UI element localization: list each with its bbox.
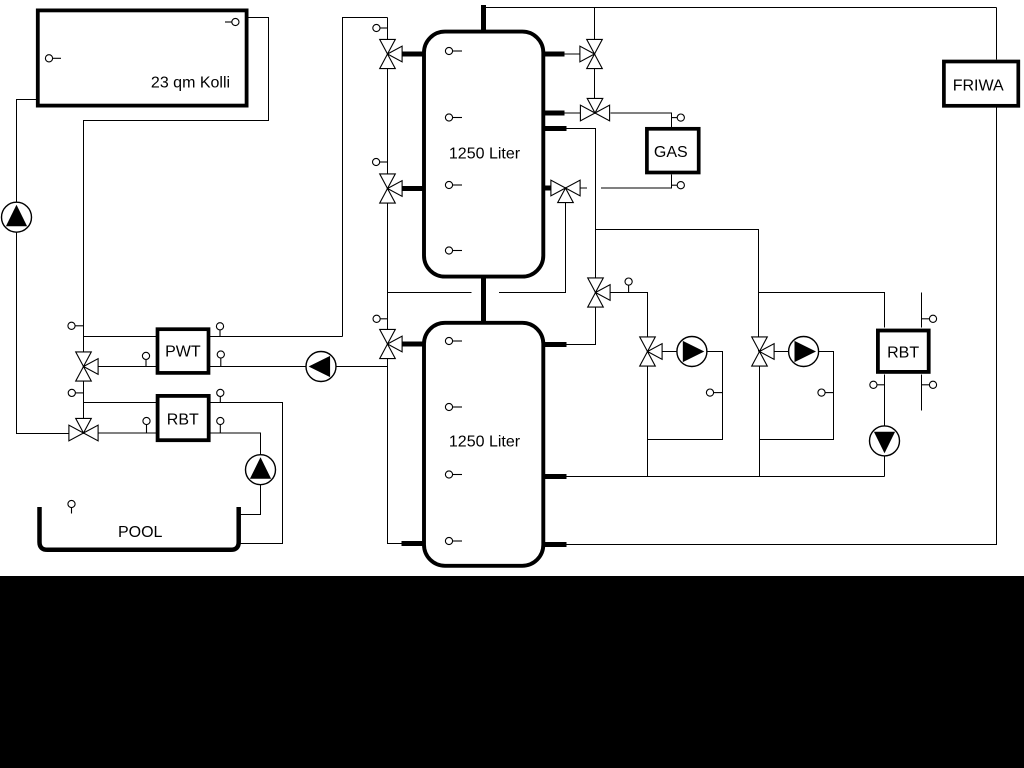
svg-text:FRIWA: FRIWA xyxy=(953,78,1004,95)
svg-text:1250 Liter: 1250 Liter xyxy=(449,434,521,451)
svg-text:RBT: RBT xyxy=(887,345,919,362)
svg-text:23 qm Kolli: 23 qm Kolli xyxy=(151,75,230,92)
svg-text:GAS: GAS xyxy=(654,144,688,161)
svg-text:1250 Liter: 1250 Liter xyxy=(449,146,521,163)
svg-text:POOL: POOL xyxy=(118,524,163,541)
svg-text:PWT: PWT xyxy=(165,344,201,361)
svg-text:RBT: RBT xyxy=(167,412,199,429)
